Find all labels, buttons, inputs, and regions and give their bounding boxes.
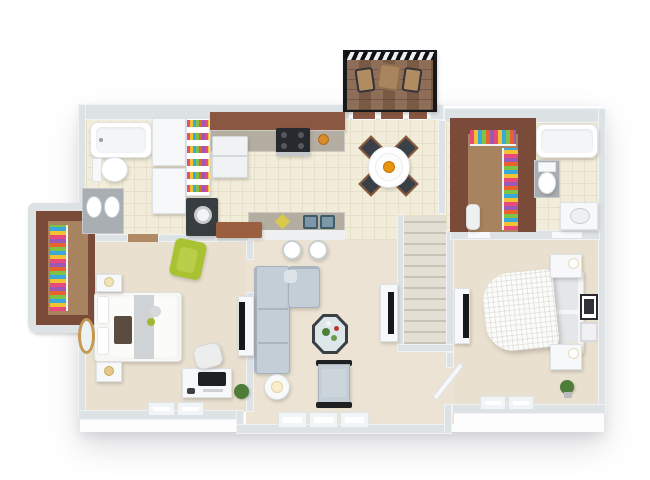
floor-lamp-bulb [271, 381, 283, 393]
bedroom1-monitor [198, 372, 226, 386]
stairwell-wall-right [446, 230, 454, 352]
coffee-table-plant-2 [331, 335, 337, 341]
breakfast-bar-base [248, 230, 345, 240]
bedroom1-tv [239, 302, 245, 350]
bathroom1-linen-cabinet-lower [152, 168, 186, 214]
bathroom1-sink-right [104, 196, 120, 218]
armchair-seat [322, 369, 346, 397]
wall-dining-east [438, 120, 446, 214]
pantry-shelves [186, 118, 210, 196]
living-tv [388, 292, 394, 334]
bedroom2-window-1 [480, 396, 506, 410]
balcony-door-transom-2 [380, 111, 404, 120]
stove-burner-3 [281, 143, 287, 149]
closet1-hanging-clothes [50, 225, 68, 311]
bedroom2-plant-pot [564, 392, 572, 398]
stairwell-wall-left [397, 214, 404, 352]
coffee-table-red-decor [334, 326, 339, 331]
bedroom2-wall-art-dark-canvas [584, 299, 594, 314]
wall-bedroom1-living-a [246, 240, 254, 260]
stove-handle [276, 152, 310, 156]
bedroom2-duvet [480, 268, 560, 353]
bedroom1-potted-plant [234, 384, 249, 399]
bedroom1-pillow-1 [97, 296, 109, 324]
balcony-door-transom-3 [408, 111, 428, 120]
bar-stool-1 [282, 240, 302, 260]
bedroom1-deco-pillow-green [147, 318, 155, 326]
balcony-chair-right [401, 67, 422, 93]
bedroom2-wall-art-light [580, 322, 598, 342]
sofa-pillow [284, 270, 297, 283]
bedroom2-tv [463, 294, 469, 338]
balcony-chair-left [354, 67, 375, 93]
staircase [404, 216, 446, 344]
bedroom1-bed-throw [114, 316, 132, 344]
refrigerator [212, 136, 248, 178]
bar-stool-2 [308, 240, 328, 260]
bedroom2-lamp-north [568, 258, 579, 269]
closet2-hanging-clothes-side [502, 148, 518, 230]
sofa-cushion-line-1 [258, 308, 288, 310]
bedroom1-gold-mirror [78, 318, 95, 354]
balcony-side-table [376, 63, 401, 92]
bedroom1-window-1 [148, 402, 175, 416]
bathroom2-sink [570, 208, 590, 224]
fruit-bowl [383, 161, 395, 173]
balcony-railing-hatch [346, 52, 434, 60]
sofa-cushion-line-2 [258, 342, 288, 344]
kitchen-sink-left-basin [303, 215, 318, 229]
living-window-3 [340, 412, 369, 428]
bedroom2-headboard-pillow-1 [554, 276, 578, 310]
exterior-wall-bay-right-stub [444, 404, 452, 434]
closet2-small-appliance [466, 204, 480, 230]
bathroom1-sink-left [86, 196, 102, 218]
bathroom2-bathtub-basin [541, 129, 593, 153]
bedroom1-bed-runner [134, 295, 154, 359]
bedroom2-lamp-south [568, 348, 579, 359]
stairwell-wall-bottom [397, 344, 454, 352]
living-window-1 [278, 412, 307, 428]
bedroom1-deco-pillow-gray [150, 306, 161, 317]
stove-burner-2 [298, 132, 304, 138]
bedroom1-pillow-2 [97, 327, 109, 355]
kitchen-sink-right-basin [320, 215, 335, 229]
bathroom1-linen-cabinet-upper [152, 118, 186, 166]
living-window-2 [309, 412, 338, 428]
bathroom1-toilet-bowl [101, 157, 128, 182]
washer-door [194, 206, 212, 224]
wall-hall-bedroom2 [446, 352, 454, 368]
bedroom1-lamp-south [104, 366, 114, 376]
bedroom1-keyboard [203, 389, 223, 392]
balcony-door-transom-1 [352, 111, 376, 120]
armchair-frame-bottom [316, 402, 352, 408]
bathroom2-toilet-bowl [538, 172, 556, 194]
bedroom1-gamepad [187, 388, 195, 394]
coffee-table-candle [326, 321, 331, 326]
bathroom2-door-threshold [552, 232, 582, 238]
refrigerator-divider [212, 155, 248, 157]
bedroom2-window-2 [508, 396, 534, 410]
stove-burner-1 [281, 132, 287, 138]
bathroom2-toilet-tank [538, 162, 556, 172]
bathroom1-bathtub-basin [96, 127, 146, 153]
closet2-door-threshold [468, 232, 490, 238]
closet2-hanging-clothes-top [470, 130, 516, 146]
kitchen-bowl [318, 134, 329, 145]
entry-wood-bench [216, 222, 262, 238]
bathroom1-tub-drain [99, 138, 103, 142]
bath1-door-threshold [128, 234, 158, 242]
bedroom1-window-2 [177, 402, 204, 416]
exterior-wall-right [598, 108, 606, 414]
floor-plan-canvas [0, 0, 650, 480]
stove-burner-4 [298, 143, 304, 149]
bedroom1-lamp-north [104, 277, 114, 287]
coffee-table-plant-1 [322, 328, 330, 336]
